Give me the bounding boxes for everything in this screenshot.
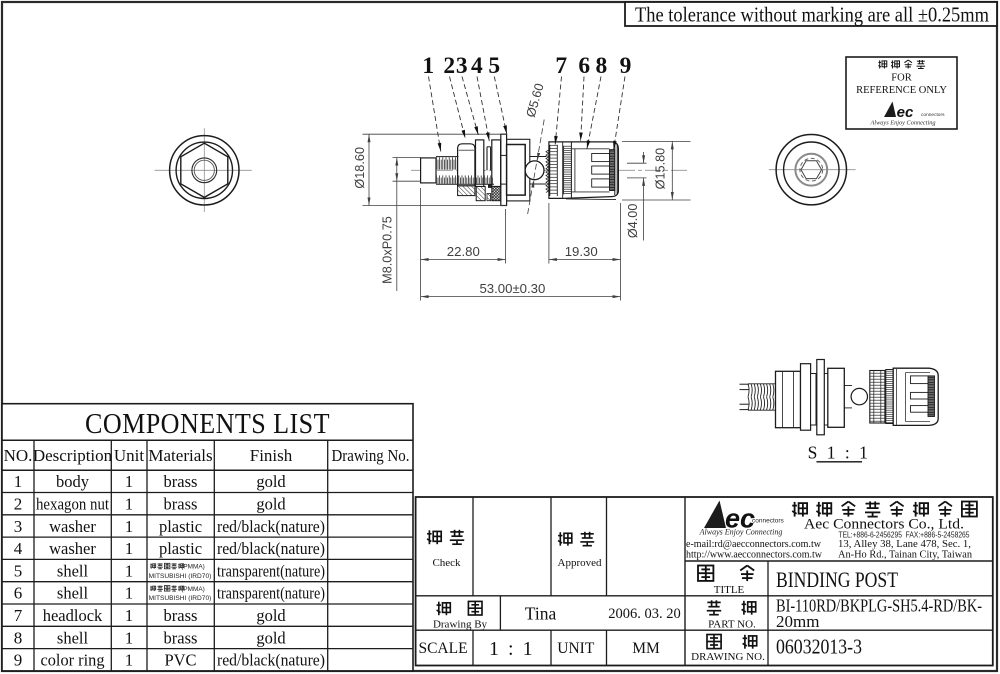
svg-text:(PMMA): (PMMA) bbox=[181, 564, 204, 571]
svg-text:Unit: Unit bbox=[114, 446, 145, 465]
svg-text:shell: shell bbox=[57, 561, 89, 580]
svg-text:body: body bbox=[56, 472, 90, 491]
svg-text:hexagon nut: hexagon nut bbox=[36, 495, 109, 514]
svg-text:brass: brass bbox=[164, 606, 198, 625]
svg-text:Always Enjoy Connecting: Always Enjoy Connecting bbox=[869, 120, 935, 127]
svg-text:53.00±0.30: 53.00±0.30 bbox=[479, 281, 545, 296]
svg-text:9: 9 bbox=[14, 651, 23, 670]
svg-text:2: 2 bbox=[443, 53, 455, 79]
svg-text:1: 1 bbox=[14, 472, 23, 491]
svg-text:Ø15.80: Ø15.80 bbox=[654, 148, 668, 190]
svg-text:5: 5 bbox=[14, 561, 23, 580]
svg-text:Drawing By: Drawing By bbox=[433, 619, 488, 631]
svg-text:2: 2 bbox=[14, 495, 23, 514]
svg-text:red/black(nature): red/black(nature) bbox=[217, 517, 325, 536]
svg-text:shell: shell bbox=[57, 584, 89, 603]
svg-text:NO.: NO. bbox=[4, 446, 33, 465]
svg-text:Tina: Tina bbox=[525, 604, 557, 624]
svg-text:Always Enjoy Connecting: Always Enjoy Connecting bbox=[699, 528, 783, 537]
svg-text:plastic: plastic bbox=[159, 517, 202, 536]
svg-text:MITSUBISHI (IRD70): MITSUBISHI (IRD70) bbox=[149, 595, 212, 602]
svg-text:FOR: FOR bbox=[891, 73, 911, 84]
svg-text:The tolerance without marking: The tolerance without marking are all ±0… bbox=[635, 3, 989, 27]
svg-text:UNIT: UNIT bbox=[557, 640, 595, 657]
svg-text:MM: MM bbox=[632, 640, 660, 657]
svg-text:9: 9 bbox=[620, 53, 632, 79]
svg-text:headlock: headlock bbox=[43, 606, 103, 625]
svg-text:Drawing No.: Drawing No. bbox=[332, 446, 410, 465]
svg-text:(PMMA): (PMMA) bbox=[181, 586, 204, 593]
svg-text:Ø18.60: Ø18.60 bbox=[353, 147, 367, 189]
svg-text:M8.0xP0.75: M8.0xP0.75 bbox=[381, 216, 395, 284]
svg-text:PART NO.: PART NO. bbox=[708, 618, 756, 630]
svg-text:shell: shell bbox=[57, 628, 89, 647]
svg-text:red/black(nature): red/black(nature) bbox=[217, 539, 325, 558]
svg-text:An-Ho Rd., Tainan City, Taiwan: An-Ho Rd., Tainan City, Taiwan bbox=[838, 550, 972, 561]
svg-text:20mm: 20mm bbox=[776, 612, 819, 631]
svg-text:1: 1 bbox=[125, 539, 134, 558]
svg-text:transparent(nature): transparent(nature) bbox=[217, 584, 325, 603]
svg-text:S 1 : 1: S 1 : 1 bbox=[808, 443, 871, 463]
svg-text:Ø4.00: Ø4.00 bbox=[626, 204, 640, 239]
svg-text:TEL:+886-6-2456295 FAX:+886-5: TEL:+886-6-2456295 FAX:+886-5-2458265 bbox=[839, 530, 971, 539]
svg-text:brass: brass bbox=[164, 472, 198, 491]
svg-text:REFERENCE ONLY: REFERENCE ONLY bbox=[856, 85, 947, 96]
svg-text:gold: gold bbox=[256, 606, 286, 625]
svg-text:1: 1 bbox=[125, 472, 134, 491]
svg-text:Materials: Materials bbox=[148, 446, 212, 465]
svg-text:gold: gold bbox=[256, 495, 286, 514]
svg-text:connectors: connectors bbox=[752, 518, 785, 525]
svg-text:Check: Check bbox=[432, 557, 461, 569]
svg-text:TITLE: TITLE bbox=[714, 584, 745, 596]
svg-text:19.30: 19.30 bbox=[565, 244, 598, 259]
svg-text:brass: brass bbox=[164, 495, 198, 514]
svg-text:1 : 1: 1 : 1 bbox=[489, 638, 535, 660]
svg-text:1: 1 bbox=[125, 584, 134, 603]
svg-text:8: 8 bbox=[596, 53, 608, 79]
svg-text:MITSUBISHI (IRD70): MITSUBISHI (IRD70) bbox=[149, 573, 212, 580]
svg-text:5: 5 bbox=[488, 53, 500, 79]
svg-text:1: 1 bbox=[125, 561, 134, 580]
svg-text:4: 4 bbox=[471, 53, 483, 79]
svg-text:22.80: 22.80 bbox=[447, 244, 480, 259]
svg-text:PVC: PVC bbox=[164, 651, 196, 670]
svg-text:7: 7 bbox=[14, 606, 23, 625]
svg-text:washer: washer bbox=[49, 517, 96, 536]
svg-text:Approved: Approved bbox=[558, 557, 602, 569]
svg-text:6: 6 bbox=[14, 584, 23, 603]
svg-text:transparent(nature): transparent(nature) bbox=[217, 561, 325, 580]
svg-text:DRAWING NO.: DRAWING NO. bbox=[691, 651, 765, 663]
svg-text:connectors: connectors bbox=[921, 112, 945, 118]
svg-text:3: 3 bbox=[456, 53, 468, 79]
svg-text:1: 1 bbox=[125, 651, 134, 670]
svg-text:SCALE: SCALE bbox=[418, 640, 467, 657]
svg-text:plastic: plastic bbox=[159, 539, 202, 558]
svg-text:6: 6 bbox=[578, 53, 590, 79]
svg-text:Finish: Finish bbox=[250, 446, 293, 465]
svg-text:red/black(nature): red/black(nature) bbox=[217, 651, 325, 670]
svg-text:color ring: color ring bbox=[41, 651, 105, 670]
svg-text:1: 1 bbox=[125, 495, 134, 514]
svg-text:Description: Description bbox=[33, 446, 113, 465]
svg-text:BINDING POST: BINDING POST bbox=[776, 567, 898, 592]
svg-text:7: 7 bbox=[555, 53, 567, 79]
svg-text:1: 1 bbox=[125, 628, 134, 647]
svg-text:8: 8 bbox=[14, 628, 23, 647]
svg-text:06032013-3: 06032013-3 bbox=[776, 635, 862, 659]
svg-text:brass: brass bbox=[164, 628, 198, 647]
svg-text:COMPONENTS LIST: COMPONENTS LIST bbox=[85, 408, 330, 440]
svg-text:gold: gold bbox=[256, 628, 286, 647]
svg-text:1: 1 bbox=[422, 53, 434, 79]
svg-text:gold: gold bbox=[256, 472, 286, 491]
svg-text:3: 3 bbox=[14, 517, 23, 536]
svg-text:1: 1 bbox=[125, 606, 134, 625]
svg-text:4: 4 bbox=[14, 539, 23, 558]
svg-text:ec: ec bbox=[897, 104, 914, 121]
svg-text:1: 1 bbox=[125, 517, 134, 536]
svg-text:washer: washer bbox=[49, 539, 96, 558]
svg-text:http://www.aecconnectors.com.t: http://www.aecconnectors.com.tw bbox=[686, 549, 822, 561]
svg-text:2006. 03. 20: 2006. 03. 20 bbox=[608, 606, 681, 622]
